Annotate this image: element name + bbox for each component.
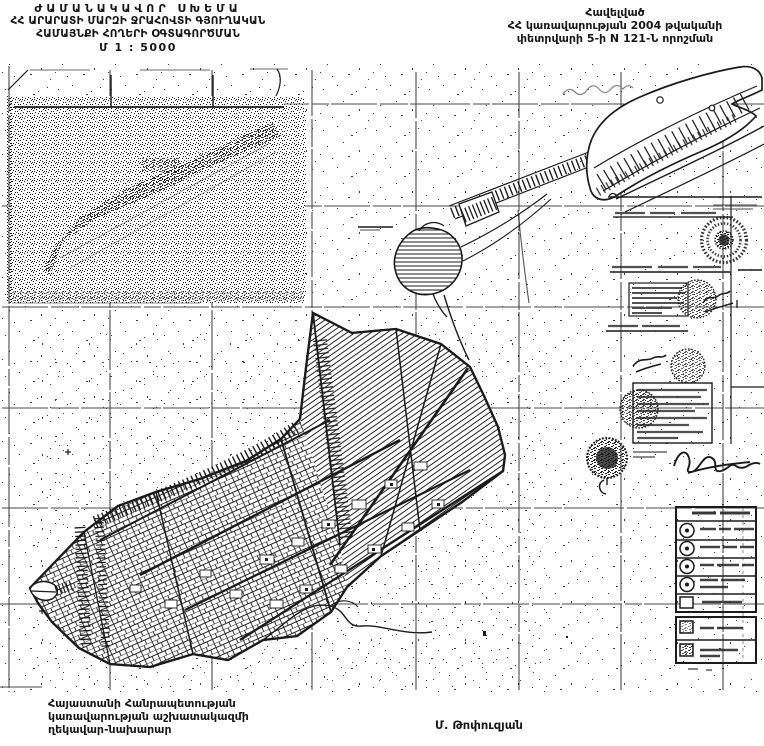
issuer-line3: ղեկավար-նախարար <box>48 723 288 736</box>
map-title-line2: ՀՀ ԱՐԱՐԱՏԻ ՄԱՐԶԻ ՋՐԱՀՈՎՏԻ ԳՅՈՒՂԱԿԱՆ <box>6 15 270 28</box>
legend-symbol-square <box>680 597 693 608</box>
inset-overview-map <box>7 69 306 303</box>
inset-left-bar <box>7 96 12 303</box>
map-title: ԺԱՄԱՆԱԿԱՎՈՐ ՍԽԵՄԱ <box>6 2 270 15</box>
annex-note-block: Հավելված ՀՀ կառավարության 2004 թվականի փ… <box>468 6 762 45</box>
annex-line2: ՀՀ կառավարության 2004 թվականի <box>468 19 762 32</box>
map-graphic <box>0 0 764 746</box>
issuer-line2: կառավարության աշխատակազմի <box>48 710 288 723</box>
issuer-block: Հայաստանի Հանրապետության կառավարության ա… <box>48 697 288 736</box>
legend-symbol-square <box>680 644 693 656</box>
inset-label-smear <box>142 158 180 172</box>
map-scale: Մ 1 : 5000 <box>6 41 270 54</box>
map-title-line3: ՀԱՄԱՅՆՔԻ ՀՈՂԵՐԻ ՕԳՏԱԳՈՐԾՄԱՆ <box>6 28 270 41</box>
signatory-name: Մ. Թոփուզյան <box>435 718 595 732</box>
issuer-line1: Հայաստանի Հանրապետության <box>48 697 288 710</box>
annex-line3: փետրվարի 5-ի N 121-Ն որոշման <box>468 32 762 45</box>
map-title-block: ԺԱՄԱՆԱԿԱՎՈՐ ՍԽԵՄԱ ՀՀ ԱՐԱՐԱՏԻ ՄԱՐԶԻ ՋՐԱՀՈ… <box>6 2 270 54</box>
legend-symbol-square <box>680 621 693 633</box>
annex-line1: Հավելված <box>468 6 762 19</box>
scanned-map-sheet: ԺԱՄԱՆԱԿԱՎՈՐ ՍԽԵՄԱ ՀՀ ԱՐԱՐԱՏԻ ՄԱՐԶԻ ՋՐԱՀՈ… <box>0 0 764 746</box>
